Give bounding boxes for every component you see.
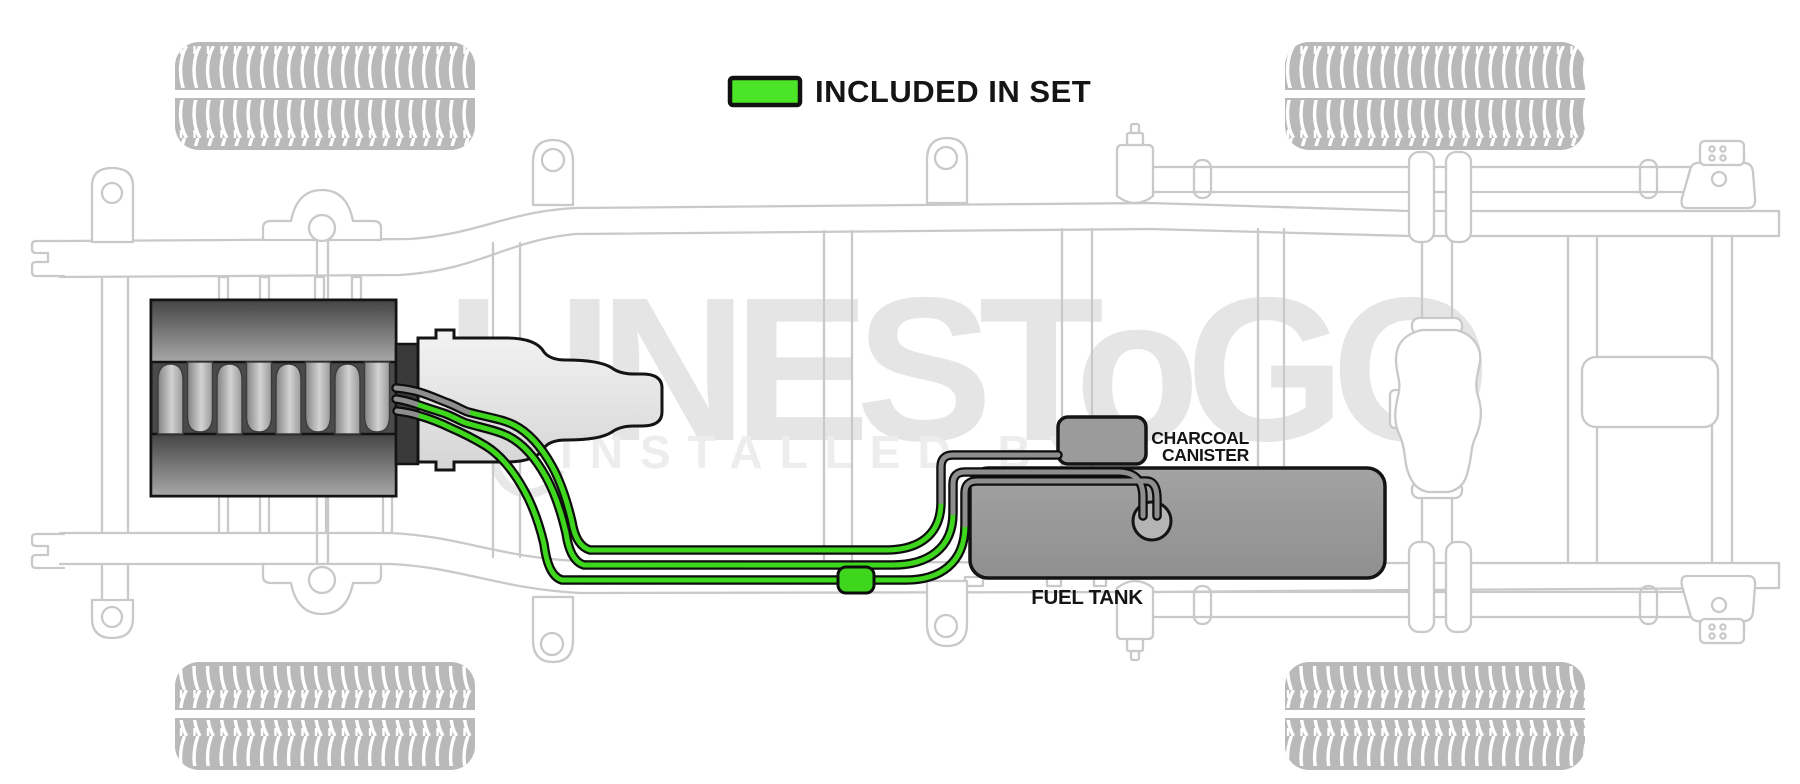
tire-front-right [1285,42,1585,150]
body-mount-plate [92,168,133,242]
rear-crossmember-box [1582,357,1718,427]
legend-label: INCLUDED IN SET [815,74,1091,109]
u-bolt-plate [1409,542,1434,632]
valve-cover-top [151,300,396,362]
u-bolt-plate [1409,152,1434,242]
front-tow-slot-bottom [32,534,64,568]
spring-hanger [1117,145,1153,203]
fuel-tank-label: FUEL TANK [1031,586,1143,609]
fuel-line-diagram: LINESToGO INSTALLED BY [0,0,1800,784]
legend-color-swatch [730,78,800,105]
front-tow-slot-top [32,241,64,276]
diagram-canvas: LINESToGO INSTALLED BY [0,0,1800,784]
charcoal-canister [1058,417,1146,464]
tire-front-left [175,42,475,150]
tire-rear-right [1285,662,1585,770]
inline-fuel-filter [838,567,874,593]
tire-rear-left [175,662,475,770]
valve-cover-bottom [151,434,396,496]
legend: INCLUDED IN SET [730,74,1091,109]
u-bolt-plate [1446,152,1471,242]
engine-block [151,300,418,496]
u-bolt-plate [1446,542,1471,632]
front-crossmember-column [102,277,128,533]
differential-housing [1395,330,1481,492]
charcoal-canister-label-line2: CANISTER [1162,445,1250,465]
